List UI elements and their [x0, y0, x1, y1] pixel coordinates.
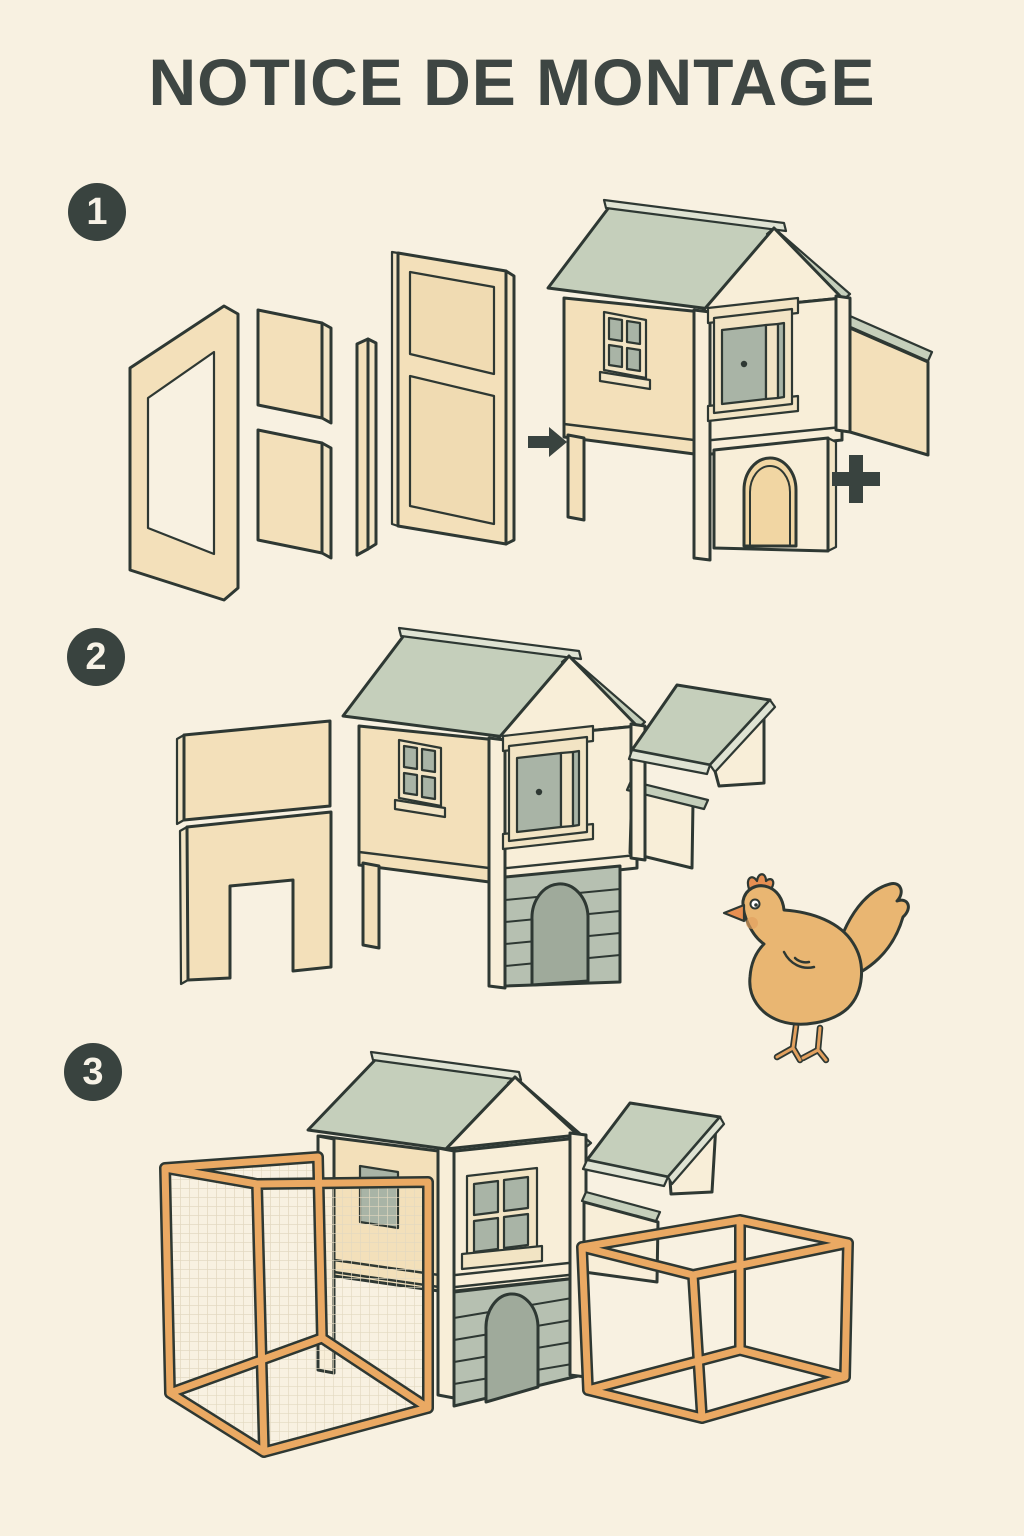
front-window [462, 1168, 542, 1269]
step-3-illustration [165, 1052, 848, 1452]
side-window [600, 312, 650, 389]
plus-icon [832, 455, 880, 503]
assembly-notice-page: { "title": "NOTICE DE MONTAGE", "steps":… [0, 0, 1024, 1536]
hen-illustration [724, 874, 908, 1060]
side-frame-panel [130, 306, 238, 600]
right-arrow-icon [528, 427, 567, 457]
front-window [708, 298, 798, 421]
front-window [503, 726, 593, 849]
doorway-panel [180, 812, 331, 984]
lower-square-panel [258, 430, 331, 558]
side-window [395, 740, 445, 817]
corner-post-part [357, 339, 376, 555]
left-mesh-run [165, 1157, 428, 1452]
back-panel [177, 721, 330, 824]
nesting-box-roof-part [629, 685, 775, 786]
assembled-coop-step1 [548, 200, 932, 560]
door-frame-panel [392, 252, 514, 544]
instruction-illustrations [0, 0, 1024, 1536]
assembled-coop-step2 [343, 628, 708, 988]
step-1-illustration [130, 200, 932, 600]
step-2-illustration [177, 628, 908, 1060]
upper-square-panel [258, 310, 331, 423]
